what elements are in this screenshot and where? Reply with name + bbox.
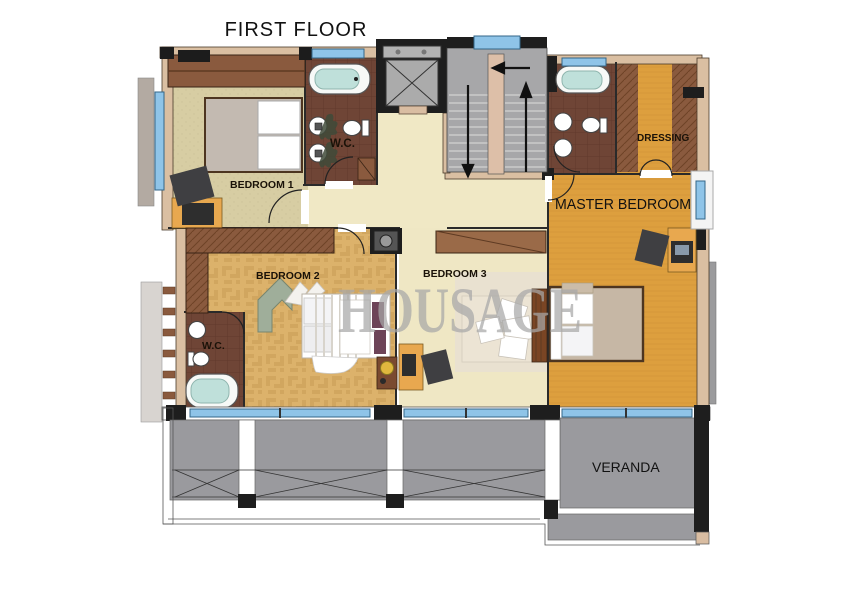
svg-text:VERANDA: VERANDA — [592, 459, 660, 475]
svg-text:DRESSING: DRESSING — [637, 133, 689, 144]
svg-text:W.C.: W.C. — [330, 138, 355, 150]
svg-text:HOUSAGE: HOUSAGE — [338, 275, 582, 347]
svg-text:FIRST FLOOR: FIRST FLOOR — [225, 19, 368, 41]
svg-text:MASTER BEDROOM: MASTER BEDROOM — [555, 196, 691, 213]
svg-text:W.C.: W.C. — [202, 340, 225, 352]
svg-text:BEDROOM 2: BEDROOM 2 — [256, 270, 320, 282]
svg-text:BEDROOM 1: BEDROOM 1 — [230, 179, 294, 191]
